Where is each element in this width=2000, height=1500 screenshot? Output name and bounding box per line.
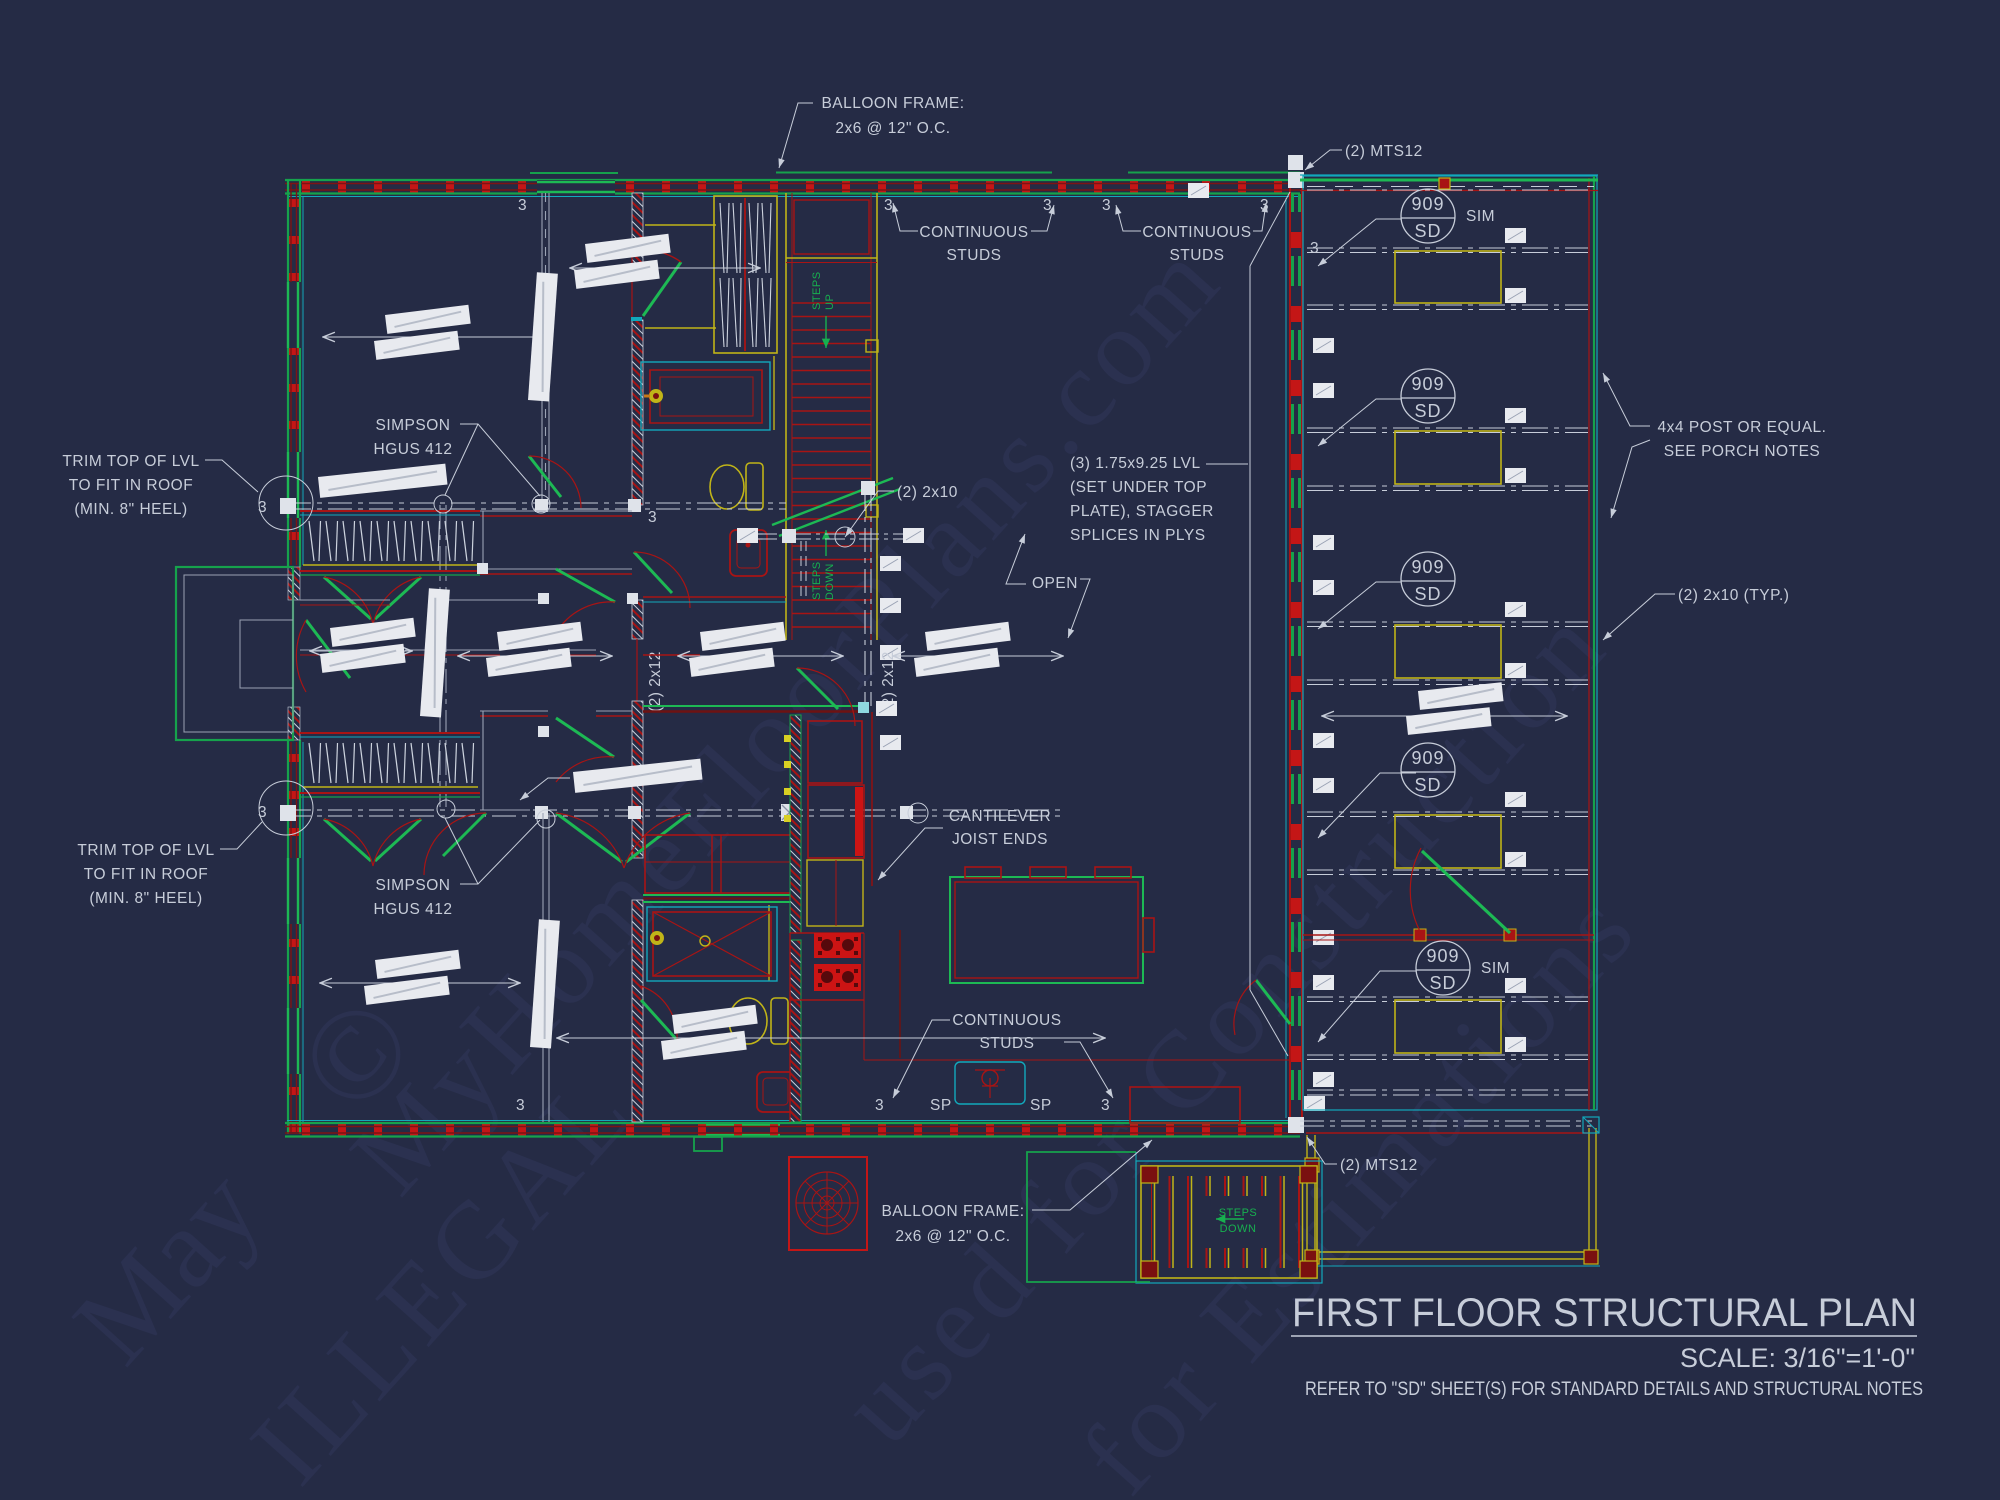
svg-text:STUDS: STUDS: [979, 1035, 1034, 1052]
svg-text:STEPS: STEPS: [811, 561, 823, 600]
svg-text:(2) 2x10: (2) 2x10: [897, 484, 958, 501]
svg-text:DOWN: DOWN: [1220, 1223, 1257, 1235]
svg-text:CONTINUOUS: CONTINUOUS: [919, 224, 1028, 241]
svg-text:3: 3: [258, 499, 267, 516]
svg-text:SEE PORCH NOTES: SEE PORCH NOTES: [1664, 443, 1821, 460]
svg-text:BALLOON FRAME:: BALLOON FRAME:: [881, 1203, 1024, 1220]
svg-text:3: 3: [258, 804, 267, 821]
svg-text:(3) 1.75x9.25 LVL: (3) 1.75x9.25 LVL: [1070, 455, 1201, 472]
svg-text:SIM: SIM: [1466, 208, 1495, 225]
svg-text:JOIST ENDS: JOIST ENDS: [952, 831, 1048, 848]
svg-text:CONTINUOUS: CONTINUOUS: [1142, 224, 1251, 241]
svg-text:SP: SP: [1030, 1097, 1052, 1114]
svg-text:REFER TO "SD" SHEET(S) FOR STA: REFER TO "SD" SHEET(S) FOR STANDARD DETA…: [1305, 1379, 1923, 1400]
svg-text:(SET UNDER TOP: (SET UNDER TOP: [1070, 479, 1207, 496]
svg-text:HGUS 412: HGUS 412: [374, 901, 453, 918]
svg-text:OPEN: OPEN: [1032, 575, 1078, 592]
svg-text:SIM: SIM: [1481, 960, 1510, 977]
svg-text:PLATE), STAGGER: PLATE), STAGGER: [1070, 503, 1214, 520]
svg-text:FIRST FLOOR STRUCTURAL PLAN: FIRST FLOOR STRUCTURAL PLAN: [1292, 1291, 1917, 1335]
svg-text:TRIM TOP OF LVL: TRIM TOP OF LVL: [62, 453, 199, 470]
svg-text:STUDS: STUDS: [1169, 247, 1224, 264]
svg-text:(MIN. 8" HEEL): (MIN. 8" HEEL): [74, 501, 187, 518]
svg-text:(MIN. 8" HEEL): (MIN. 8" HEEL): [89, 890, 202, 907]
svg-text:3: 3: [1102, 197, 1111, 214]
svg-text:2x6 @ 12" O.C.: 2x6 @ 12" O.C.: [895, 1228, 1010, 1245]
svg-text:BALLOON FRAME:: BALLOON FRAME:: [821, 95, 964, 112]
svg-text:TO FIT IN ROOF: TO FIT IN ROOF: [69, 477, 193, 494]
svg-text:2x6 @ 12" O.C.: 2x6 @ 12" O.C.: [835, 120, 950, 137]
svg-text:STEPS: STEPS: [811, 271, 823, 310]
svg-text:(2) 2x12: (2) 2x12: [647, 651, 664, 712]
svg-text:HGUS 412: HGUS 412: [374, 441, 453, 458]
svg-text:3: 3: [1101, 1097, 1110, 1114]
svg-text:SCALE: 3/16"=1'-0": SCALE: 3/16"=1'-0": [1680, 1343, 1915, 1373]
svg-text:UP: UP: [824, 294, 836, 310]
svg-text:3: 3: [648, 509, 657, 526]
svg-text:DOWN: DOWN: [824, 563, 836, 600]
svg-text:TRIM TOP OF LVL: TRIM TOP OF LVL: [77, 842, 214, 859]
svg-text:TO FIT IN ROOF: TO FIT IN ROOF: [84, 866, 208, 883]
svg-text:3: 3: [516, 1097, 525, 1114]
svg-text:3: 3: [875, 1097, 884, 1114]
svg-text:(2) MTS12: (2) MTS12: [1345, 143, 1423, 160]
svg-text:4x4 POST OR EQUAL.: 4x4 POST OR EQUAL.: [1658, 419, 1827, 436]
svg-text:(2) 2x10 (TYP.): (2) 2x10 (TYP.): [1678, 587, 1789, 604]
svg-text:3: 3: [1310, 240, 1319, 257]
svg-text:3: 3: [1043, 197, 1052, 214]
svg-text:3: 3: [884, 197, 893, 214]
svg-text:CONTINUOUS: CONTINUOUS: [952, 1012, 1061, 1029]
svg-text:STEPS: STEPS: [1219, 1207, 1258, 1219]
svg-text:SP: SP: [930, 1097, 952, 1114]
svg-text:3: 3: [518, 197, 527, 214]
svg-text:SIMPSON: SIMPSON: [376, 417, 451, 434]
svg-text:STUDS: STUDS: [946, 247, 1001, 264]
svg-text:CANTILEVER: CANTILEVER: [949, 808, 1051, 825]
svg-text:(2) MTS12: (2) MTS12: [1340, 1157, 1418, 1174]
svg-text:SPLICES IN PLYS: SPLICES IN PLYS: [1070, 527, 1206, 544]
svg-text:SIMPSON: SIMPSON: [376, 877, 451, 894]
